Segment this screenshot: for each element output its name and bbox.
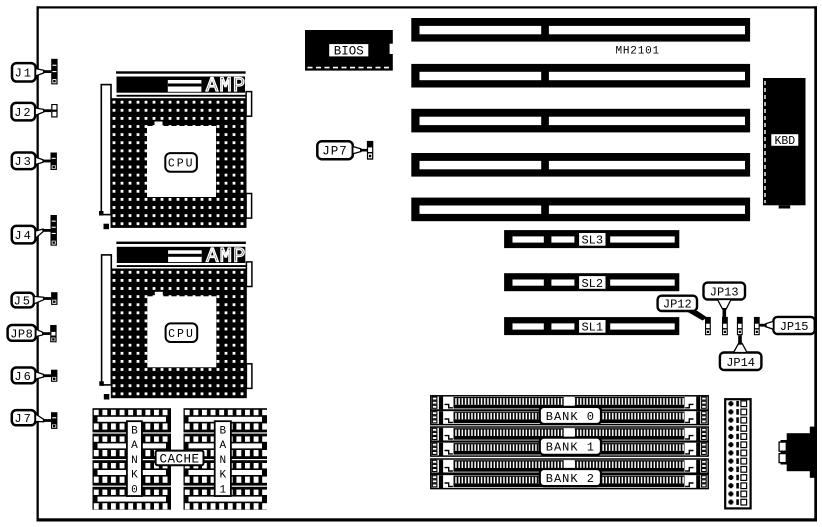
svg-text:JP15: JP15	[780, 320, 809, 334]
svg-text:JP7: JP7	[322, 145, 348, 159]
svg-text:J7: J7	[14, 412, 32, 426]
svg-text:JP12: JP12	[663, 298, 692, 312]
svg-text:KBD: KBD	[774, 135, 795, 148]
svg-text:N: N	[219, 455, 226, 467]
svg-text:JP14: JP14	[726, 356, 755, 370]
svg-text:BIOS: BIOS	[334, 44, 364, 58]
svg-text:J5: J5	[14, 295, 32, 309]
svg-text:BANK 0: BANK 0	[546, 410, 595, 424]
svg-text:B: B	[219, 426, 226, 438]
svg-text:A: A	[131, 440, 138, 452]
svg-text:JP8: JP8	[10, 327, 33, 341]
svg-text:JP13: JP13	[710, 285, 739, 299]
svg-text:K: K	[131, 470, 138, 482]
svg-text:BANK 1: BANK 1	[546, 441, 595, 455]
svg-text:K: K	[219, 470, 226, 482]
svg-text:J4: J4	[14, 229, 32, 243]
svg-text:1: 1	[219, 484, 226, 496]
svg-text:B: B	[131, 426, 138, 438]
svg-text:J3: J3	[14, 155, 32, 169]
svg-text:SL1: SL1	[581, 321, 603, 335]
svg-text:CACHE: CACHE	[159, 452, 199, 466]
svg-text:SL2: SL2	[581, 277, 603, 291]
svg-text:A: A	[219, 440, 226, 452]
svg-text:J6: J6	[14, 370, 32, 384]
svg-text:J2: J2	[14, 106, 32, 120]
svg-text:AMP: AMP	[206, 245, 247, 268]
svg-text:MH2101: MH2101	[616, 46, 660, 58]
svg-text:0: 0	[131, 484, 138, 496]
svg-text:N: N	[131, 455, 138, 467]
svg-text:CPU: CPU	[168, 158, 195, 171]
svg-text:J1: J1	[15, 67, 33, 81]
svg-text:CPU: CPU	[168, 328, 195, 341]
svg-text:BANK 2: BANK 2	[546, 472, 595, 486]
svg-text:AMP: AMP	[206, 75, 247, 98]
svg-text:SL3: SL3	[581, 234, 603, 248]
